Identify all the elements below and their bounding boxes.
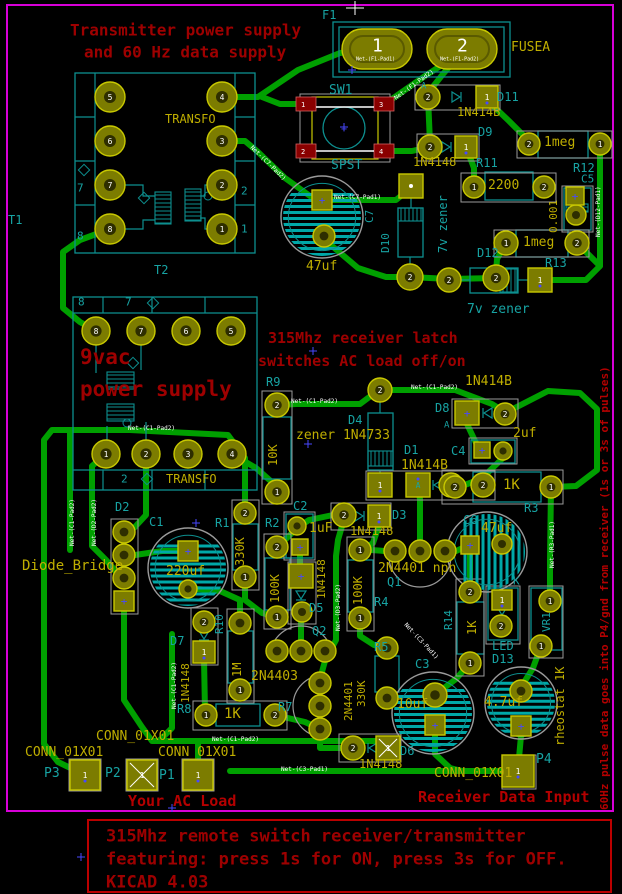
- square-pad[interactable]: 1: [368, 473, 392, 497]
- net-label[interactable]: Net-(C1-Pad2): [212, 736, 259, 743]
- component-label[interactable]: 100K: [351, 575, 365, 605]
- through-hole-pad[interactable]: 2: [490, 615, 512, 637]
- component-label[interactable]: 1N4148: [359, 757, 402, 771]
- component-label[interactable]: C1: [149, 515, 163, 529]
- net-label[interactable]: Net-(C1-Pad2): [128, 425, 175, 432]
- annotation-text[interactable]: featuring: press 1s for ON, press 3s for…: [106, 849, 567, 869]
- through-hole-pad[interactable]: 1: [92, 440, 120, 468]
- net-label[interactable]: Net-(C3-Pad1): [281, 766, 328, 773]
- diamond-marker: [147, 297, 158, 308]
- component-label[interactable]: F1: [322, 8, 336, 22]
- svg-text:1: 1: [140, 771, 145, 780]
- net-label[interactable]: Net-(C1-Pad2): [69, 499, 76, 546]
- svg-text:5: 5: [108, 93, 113, 102]
- through-hole-pad[interactable]: 4: [218, 440, 246, 468]
- svg-text:2: 2: [481, 481, 486, 490]
- component-label[interactable]: C5: [581, 172, 594, 185]
- component-label[interactable]: D9: [478, 125, 492, 139]
- svg-text:1: 1: [275, 488, 280, 497]
- svg-text:1: 1: [378, 481, 383, 490]
- net-label[interactable]: Net-(C3-Pad1): [403, 622, 440, 661]
- pushbutton-sw1[interactable]: +1324: [296, 97, 394, 159]
- net-label[interactable]: Net-(F1-Pad2): [440, 56, 479, 62]
- component-label[interactable]: P3: [44, 766, 60, 781]
- annotation-text[interactable]: Receiver Data Input: [418, 788, 590, 806]
- component-label[interactable]: D13: [492, 652, 514, 666]
- hatch-body: [185, 189, 201, 221]
- component-label[interactable]: 1N4148: [315, 559, 328, 599]
- component-label[interactable]: R8: [177, 702, 191, 716]
- annotation-text[interactable]: 9vac: [80, 345, 131, 369]
- component-label[interactable]: C2: [293, 499, 307, 513]
- component-label[interactable]: 1meg: [523, 235, 554, 250]
- svg-text:1: 1: [377, 512, 382, 521]
- through-hole-pad[interactable]: 2: [494, 403, 516, 425]
- through-hole-pad[interactable]: 1: [207, 214, 237, 244]
- svg-text:1: 1: [548, 597, 553, 606]
- through-hole-pad[interactable]: [566, 205, 586, 225]
- component-label[interactable]: 10uf: [397, 697, 428, 712]
- through-hole-pad[interactable]: 2: [265, 393, 289, 417]
- component-label[interactable]: 1N4148: [179, 663, 192, 703]
- svg-text:6: 6: [108, 137, 113, 146]
- svg-text:6: 6: [184, 327, 189, 336]
- square-pad[interactable]: 1: [193, 641, 215, 663]
- annotation-text[interactable]: and 60 Hz data supply: [84, 43, 287, 62]
- svg-text:+: +: [121, 595, 128, 608]
- net-label[interactable]: Net-(D2-Pad2): [91, 499, 98, 546]
- hatch-body: [155, 192, 171, 224]
- through-hole-pad[interactable]: 2: [397, 264, 423, 290]
- svg-text:4: 4: [220, 93, 225, 102]
- diode-symbol-icon: [452, 92, 461, 102]
- annotation-text[interactable]: 315Mhz remote switch receiver/transmitte…: [106, 826, 526, 846]
- square-pad[interactable]: +: [566, 187, 584, 205]
- component-label[interactable]: Q1: [387, 575, 401, 589]
- through-hole-pad[interactable]: 2: [459, 581, 481, 603]
- square-pad[interactable]: 1: [528, 268, 552, 292]
- component-label[interactable]: 1N4148: [413, 155, 456, 169]
- diode-symbol-icon: [483, 408, 492, 418]
- component-label[interactable]: 7: [77, 181, 84, 194]
- component-label[interactable]: C6: [463, 513, 477, 527]
- annotation-text[interactable]: Transmitter power supply: [70, 21, 302, 40]
- through-hole-pad[interactable]: 6: [172, 317, 200, 345]
- component-label[interactable]: 2N4401: [342, 681, 355, 721]
- svg-text:2: 2: [447, 276, 452, 285]
- square-pad[interactable]: +: [114, 591, 134, 611]
- copper-trace[interactable]: [371, 550, 385, 551]
- svg-text:1: 1: [83, 771, 88, 780]
- svg-text:1: 1: [472, 183, 477, 192]
- component-label[interactable]: R5: [374, 640, 388, 654]
- through-hole-pad[interactable]: 1: [463, 176, 485, 198]
- pcb-canvas[interactable]: 5678432187651234221221122222122121112222…: [0, 0, 622, 894]
- component-label[interactable]: CONN_01X01: [96, 729, 174, 744]
- through-hole-pad[interactable]: 3: [207, 126, 237, 156]
- through-hole-pad[interactable]: 2: [416, 85, 440, 109]
- through-hole-pad[interactable]: [229, 612, 251, 634]
- component-label[interactable]: R2: [265, 516, 279, 530]
- component-label[interactable]: C3: [415, 657, 429, 671]
- svg-text:A: A: [416, 481, 421, 490]
- through-hole-pad[interactable]: [376, 687, 398, 709]
- net-label[interactable]: Net-(C1-Pad2): [171, 662, 178, 709]
- square-pad[interactable]: +: [178, 541, 198, 561]
- svg-text:1: 1: [196, 771, 201, 780]
- svg-text:+: +: [572, 190, 579, 203]
- svg-text:+: +: [467, 539, 474, 552]
- svg-text:2: 2: [428, 143, 433, 152]
- svg-text:1: 1: [538, 276, 543, 285]
- copper-trace[interactable]: [63, 229, 110, 331]
- net-label[interactable]: Net-(C1-Pad2): [291, 398, 338, 405]
- diamond-marker: [78, 164, 89, 175]
- component-label[interactable]: T1: [8, 213, 22, 227]
- through-hole-pad[interactable]: [434, 540, 456, 562]
- copper-trace[interactable]: [325, 240, 410, 277]
- component-label[interactable]: 2N4403: [251, 669, 298, 684]
- svg-text:2: 2: [503, 410, 508, 419]
- svg-text:+: +: [479, 444, 486, 457]
- component-label[interactable]: R11: [476, 156, 498, 170]
- svg-text:4: 4: [230, 450, 235, 459]
- annotation-text[interactable]: switches AC load off/on: [258, 352, 466, 370]
- through-hole-pad[interactable]: [266, 640, 288, 662]
- component-label[interactable]: 2200: [488, 178, 519, 193]
- component-label[interactable]: D8: [435, 401, 449, 415]
- svg-text:1: 1: [500, 596, 505, 605]
- component-label[interactable]: R13: [545, 256, 567, 270]
- square-pad[interactable]: +: [292, 539, 308, 555]
- component-label[interactable]: R3: [524, 501, 538, 515]
- component-label[interactable]: SW1: [329, 83, 352, 98]
- component-label[interactable]: TRANSFO: [166, 472, 217, 486]
- component-label[interactable]: 1N4148: [350, 524, 393, 538]
- pcb-board-svg: 5678432187651234221221122222122121112222…: [0, 0, 622, 894]
- component-label[interactable]: D5: [309, 601, 323, 615]
- component-label[interactable]: D4: [348, 413, 362, 427]
- through-hole-pad[interactable]: [113, 521, 135, 543]
- component-label[interactable]: R7: [278, 700, 292, 714]
- component-label[interactable]: 1meg: [544, 135, 575, 150]
- anchor-plus-icon: [192, 519, 200, 527]
- svg-text:2: 2: [575, 239, 580, 248]
- through-hole-pad[interactable]: 1: [539, 590, 561, 612]
- anchor-plus-icon: [77, 853, 85, 861]
- svg-text:1: 1: [301, 101, 305, 109]
- square-pad[interactable]: 1: [127, 760, 157, 790]
- component-label[interactable]: 330K: [233, 536, 247, 566]
- svg-text:1: 1: [358, 546, 363, 555]
- svg-text:4: 4: [379, 148, 383, 156]
- through-hole-pad[interactable]: [309, 672, 331, 694]
- svg-text:1: 1: [468, 659, 473, 668]
- through-hole-pad[interactable]: [384, 540, 406, 562]
- square-pad[interactable]: +: [425, 715, 445, 735]
- through-hole-pad[interactable]: 2: [368, 378, 392, 402]
- net-label[interactable]: Net-(F1-Pad1): [356, 56, 395, 62]
- svg-text:7: 7: [108, 181, 113, 190]
- component-label[interactable]: P2: [105, 766, 121, 781]
- through-hole-pad[interactable]: 5: [217, 317, 245, 345]
- component-label[interactable]: SPST: [331, 158, 362, 173]
- through-hole-pad[interactable]: 7: [95, 170, 125, 200]
- svg-text:8: 8: [108, 225, 113, 234]
- origin-crosshair-icon: [346, 1, 364, 15]
- through-hole-pad[interactable]: 2: [471, 473, 495, 497]
- component-label[interactable]: rheostat 1K: [553, 666, 567, 746]
- through-hole-pad[interactable]: 4: [207, 82, 237, 112]
- component-label[interactable]: P4: [536, 752, 552, 767]
- hatch-body: [368, 451, 393, 466]
- svg-text:3: 3: [379, 101, 383, 109]
- component-label[interactable]: CONN_01X01: [25, 745, 103, 760]
- through-hole-pad[interactable]: 2: [266, 536, 288, 558]
- svg-text:1: 1: [516, 767, 521, 776]
- through-hole-pad[interactable]: 2: [193, 611, 215, 633]
- component-label[interactable]: 1M: [230, 663, 244, 677]
- component-label[interactable]: D12: [477, 246, 499, 260]
- svg-text:1: 1: [238, 686, 243, 695]
- svg-text:1: 1: [386, 744, 391, 753]
- svg-text:2: 2: [527, 140, 532, 149]
- net-label[interactable]: Net-(C1-Pad2): [411, 384, 458, 391]
- through-hole-pad[interactable]: [309, 718, 331, 740]
- svg-text:2: 2: [453, 483, 458, 492]
- silkscreen-outline[interactable]: [398, 208, 423, 257]
- component-label[interactable]: R9: [266, 375, 280, 389]
- diamond-marker: [138, 192, 149, 203]
- annotation-text[interactable]: power supply: [80, 377, 232, 401]
- square-pad[interactable]: 1: [183, 760, 213, 790]
- net-label[interactable]: Net-(D3-Pad2): [335, 584, 342, 631]
- svg-text:2: 2: [275, 543, 280, 552]
- component-label[interactable]: 1N414B: [401, 458, 448, 473]
- svg-text:3: 3: [186, 450, 191, 459]
- component-label[interactable]: R14: [442, 610, 455, 630]
- component-label[interactable]: A: [444, 421, 450, 431]
- svg-text:+: +: [518, 720, 525, 733]
- through-hole-pad[interactable]: 2: [234, 502, 256, 524]
- component-label[interactable]: 7v zener: [436, 195, 450, 253]
- svg-text:+: +: [464, 407, 471, 420]
- component-label[interactable]: 100K: [268, 573, 282, 603]
- svg-text:2: 2: [426, 93, 431, 102]
- component-label[interactable]: D3: [392, 508, 406, 522]
- svg-text:8: 8: [94, 327, 99, 336]
- through-hole-pad[interactable]: 2: [483, 265, 509, 291]
- through-hole-pad[interactable]: 1: [349, 539, 371, 561]
- svg-text:1: 1: [243, 573, 248, 582]
- component-label[interactable]: T2: [154, 263, 168, 277]
- through-hole-pad[interactable]: [492, 534, 512, 554]
- svg-text:+: +: [185, 545, 192, 558]
- svg-text:+: +: [319, 194, 326, 207]
- component-label[interactable]: VR1: [540, 612, 553, 632]
- component-label[interactable]: 1: [241, 222, 248, 235]
- component-label[interactable]: 330K: [355, 680, 368, 707]
- component-label[interactable]: C4: [451, 444, 465, 458]
- component-label[interactable]: 2N4401 npn: [378, 561, 456, 576]
- component-label[interactable]: 47uf: [481, 521, 512, 536]
- svg-text:1: 1: [485, 93, 490, 102]
- component-label[interactable]: zener 1N4733: [296, 428, 390, 443]
- through-hole-pad[interactable]: 1: [530, 635, 552, 657]
- component-label[interactable]: TRANSFO: [165, 112, 216, 126]
- svg-text:2: 2: [275, 401, 280, 410]
- svg-text:1: 1: [104, 450, 109, 459]
- component-label[interactable]: 8: [77, 229, 84, 242]
- svg-text:2: 2: [542, 183, 547, 192]
- square-pad[interactable]: +: [455, 401, 479, 425]
- through-hole-pad[interactable]: 2: [437, 268, 461, 292]
- diode-symbol-icon: [296, 591, 306, 600]
- through-hole-pad[interactable]: 8: [95, 214, 125, 244]
- square-pad[interactable]: [399, 174, 423, 198]
- svg-text:2: 2: [468, 588, 473, 597]
- component-label[interactable]: 10K: [266, 444, 280, 466]
- component-label[interactable]: D2: [115, 500, 129, 514]
- component-label[interactable]: 7: [125, 295, 132, 308]
- through-hole-pad[interactable]: [409, 540, 431, 562]
- through-hole-pad[interactable]: 1: [349, 607, 371, 629]
- through-hole-pad[interactable]: [179, 580, 197, 598]
- through-hole-pad[interactable]: 1: [540, 476, 562, 498]
- svg-text:1: 1: [204, 711, 209, 720]
- component-label[interactable]: C7: [363, 210, 376, 223]
- through-hole-pad[interactable]: 7: [127, 317, 155, 345]
- square-pad[interactable]: +: [312, 190, 332, 210]
- net-label[interactable]: Net-(R3-Pad1): [549, 521, 556, 568]
- component-label[interactable]: 4.7uf: [484, 695, 523, 710]
- through-hole-pad[interactable]: [494, 442, 512, 460]
- component-label[interactable]: D10: [379, 233, 392, 253]
- component-label[interactable]: LED: [492, 639, 514, 653]
- through-hole-pad[interactable]: 1: [266, 606, 288, 628]
- square-pad[interactable]: +: [474, 442, 490, 458]
- component-label[interactable]: 1K: [224, 706, 241, 722]
- component-label[interactable]: 7v zener: [467, 302, 530, 317]
- through-hole-pad[interactable]: 8: [82, 317, 110, 345]
- component-label[interactable]: 1uF: [309, 521, 333, 536]
- through-hole-pad[interactable]: 2: [533, 176, 555, 198]
- component-label[interactable]: 8: [78, 295, 85, 308]
- square-pad[interactable]: 1: [455, 136, 477, 158]
- svg-text:1: 1: [598, 140, 603, 149]
- component-label[interactable]: R10: [213, 614, 226, 634]
- svg-text:2: 2: [342, 511, 347, 520]
- svg-text:2: 2: [273, 711, 278, 720]
- svg-text:2: 2: [499, 622, 504, 631]
- svg-text:1: 1: [504, 239, 509, 248]
- annotation-text[interactable]: 315Mhz receiver latch: [268, 329, 458, 347]
- through-hole-pad[interactable]: 1: [195, 704, 217, 726]
- component-label[interactable]: 1K: [503, 477, 520, 493]
- svg-text:1: 1: [464, 143, 469, 152]
- square-pad[interactable]: A: [406, 473, 430, 497]
- through-hole-pad[interactable]: 2: [565, 231, 589, 255]
- through-hole-pad[interactable]: [288, 517, 306, 535]
- component-label[interactable]: D1: [404, 443, 418, 457]
- component-label[interactable]: D7: [170, 634, 184, 648]
- component-label[interactable]: 47uf: [306, 259, 337, 274]
- annotation-text[interactable]: KICAD 4.03: [106, 872, 208, 892]
- svg-text:1: 1: [202, 648, 207, 657]
- hatch-body: [107, 404, 134, 421]
- through-hole-pad[interactable]: 1: [589, 133, 611, 155]
- through-hole-pad[interactable]: 6: [95, 126, 125, 156]
- annotation-text[interactable]: Your AC Load: [128, 792, 236, 810]
- hatch-body: [398, 208, 423, 221]
- component-label[interactable]: Diode_Bridge: [22, 558, 123, 574]
- annotation-text[interactable]: 60Hz pulse data goes into P4/gnd from re…: [598, 366, 611, 810]
- square-pad[interactable]: +: [511, 716, 531, 736]
- svg-text:+: +: [432, 719, 439, 732]
- through-hole-pad[interactable]: 3: [174, 440, 202, 468]
- component-label[interactable]: CONN_01X01: [434, 766, 512, 781]
- through-hole-pad[interactable]: [314, 640, 336, 662]
- through-hole-pad[interactable]: [290, 640, 312, 662]
- component-label[interactable]: 220uf: [166, 564, 205, 579]
- through-hole-pad[interactable]: 2: [518, 133, 540, 155]
- component-label[interactable]: Q2: [312, 624, 326, 638]
- svg-text:7: 7: [139, 327, 144, 336]
- square-pad[interactable]: +: [461, 536, 479, 554]
- through-hole-pad[interactable]: 1: [265, 480, 289, 504]
- svg-text:2: 2: [144, 450, 149, 459]
- through-hole-pad[interactable]: 1: [234, 566, 256, 588]
- through-hole-pad[interactable]: 2: [207, 170, 237, 200]
- through-hole-pad[interactable]: [309, 695, 331, 717]
- component-label[interactable]: 1K: [465, 620, 479, 635]
- through-hole-pad[interactable]: 2: [132, 440, 160, 468]
- component-label[interactable]: P1: [159, 768, 175, 783]
- svg-text:3: 3: [220, 137, 225, 146]
- net-label[interactable]: 2: [457, 35, 468, 56]
- component-label[interactable]: 1N414B: [457, 105, 500, 119]
- component-label[interactable]: 2: [241, 184, 248, 197]
- component-label[interactable]: D6: [400, 744, 414, 758]
- net-label[interactable]: Net-(D12-Pad1): [595, 186, 602, 237]
- svg-text:2: 2: [378, 386, 383, 395]
- svg-text:5: 5: [229, 327, 234, 336]
- square-pad[interactable]: +: [289, 564, 313, 588]
- through-hole-pad[interactable]: 5: [95, 82, 125, 112]
- component-label[interactable]: R1: [215, 516, 229, 530]
- component-label[interactable]: R4: [374, 595, 388, 609]
- component-label[interactable]: 2: [121, 472, 128, 485]
- component-label[interactable]: D11: [497, 90, 519, 104]
- svg-text:+: +: [297, 541, 304, 554]
- through-hole-pad[interactable]: [313, 225, 335, 247]
- net-label[interactable]: 1: [372, 35, 383, 56]
- svg-text:2: 2: [202, 618, 207, 627]
- square-pad[interactable]: 1: [492, 590, 512, 610]
- net-label[interactable]: Net-(C7-Pad1): [334, 194, 381, 201]
- component-label[interactable]: CONN_01X01: [158, 745, 236, 760]
- component-label[interactable]: K: [513, 574, 520, 587]
- square-pad[interactable]: 1: [70, 760, 100, 790]
- svg-text:2: 2: [494, 274, 499, 283]
- component-label[interactable]: 1N414B: [465, 374, 512, 389]
- through-hole-pad[interactable]: 2: [444, 476, 466, 498]
- through-hole-pad[interactable]: 1: [459, 652, 481, 674]
- component-label[interactable]: FUSEA: [511, 40, 550, 55]
- component-label[interactable]: 0.001: [547, 200, 560, 233]
- component-label[interactable]: 2uf: [513, 426, 536, 441]
- through-hole-pad[interactable]: 1: [229, 679, 251, 701]
